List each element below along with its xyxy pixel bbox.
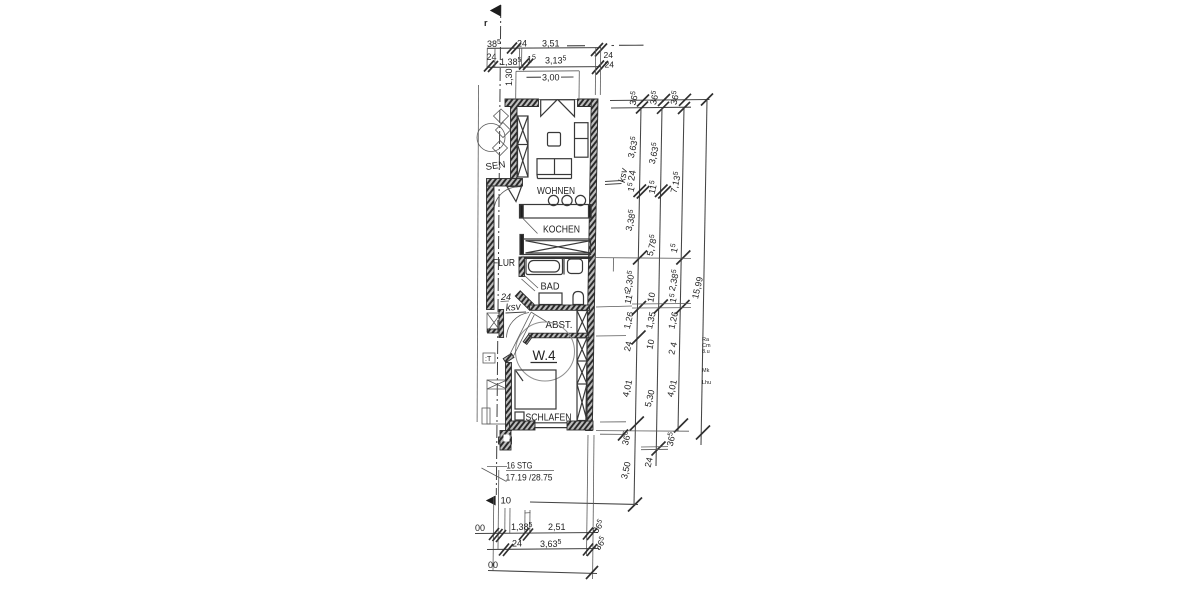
svg-text:24: 24	[626, 169, 639, 181]
svg-text:24: 24	[605, 60, 615, 70]
svg-text:8.u: 8.u	[702, 349, 710, 355]
svg-text:r: r	[484, 18, 488, 28]
svg-text:W.4: W.4	[533, 347, 556, 363]
svg-text:3,51: 3,51	[542, 39, 560, 49]
svg-text:16 STG: 16 STG	[507, 461, 533, 472]
svg-text:00: 00	[488, 560, 498, 570]
svg-text:FLUR: FLUR	[493, 257, 515, 269]
svg-text:BAD: BAD	[541, 281, 560, 293]
svg-text:10: 10	[501, 496, 512, 507]
svg-text:24: 24	[604, 50, 614, 60]
svg-text:KOCHEN: KOCHEN	[543, 224, 580, 236]
svg-text::T: :T	[485, 356, 492, 363]
svg-text:WOHNEN: WOHNEN	[537, 185, 575, 197]
svg-text:24: 24	[512, 539, 522, 549]
svg-text:Lhu: Lhu	[702, 380, 711, 386]
svg-text:1,30: 1,30	[504, 68, 514, 86]
svg-text:00: 00	[475, 523, 485, 533]
svg-text:Mk: Mk	[702, 368, 710, 374]
svg-text:17.19 /28.75: 17.19 /28.75	[506, 473, 553, 484]
svg-text:24: 24	[500, 292, 511, 302]
svg-text:2,51: 2,51	[548, 522, 566, 532]
svg-text:3,00: 3,00	[542, 73, 560, 83]
